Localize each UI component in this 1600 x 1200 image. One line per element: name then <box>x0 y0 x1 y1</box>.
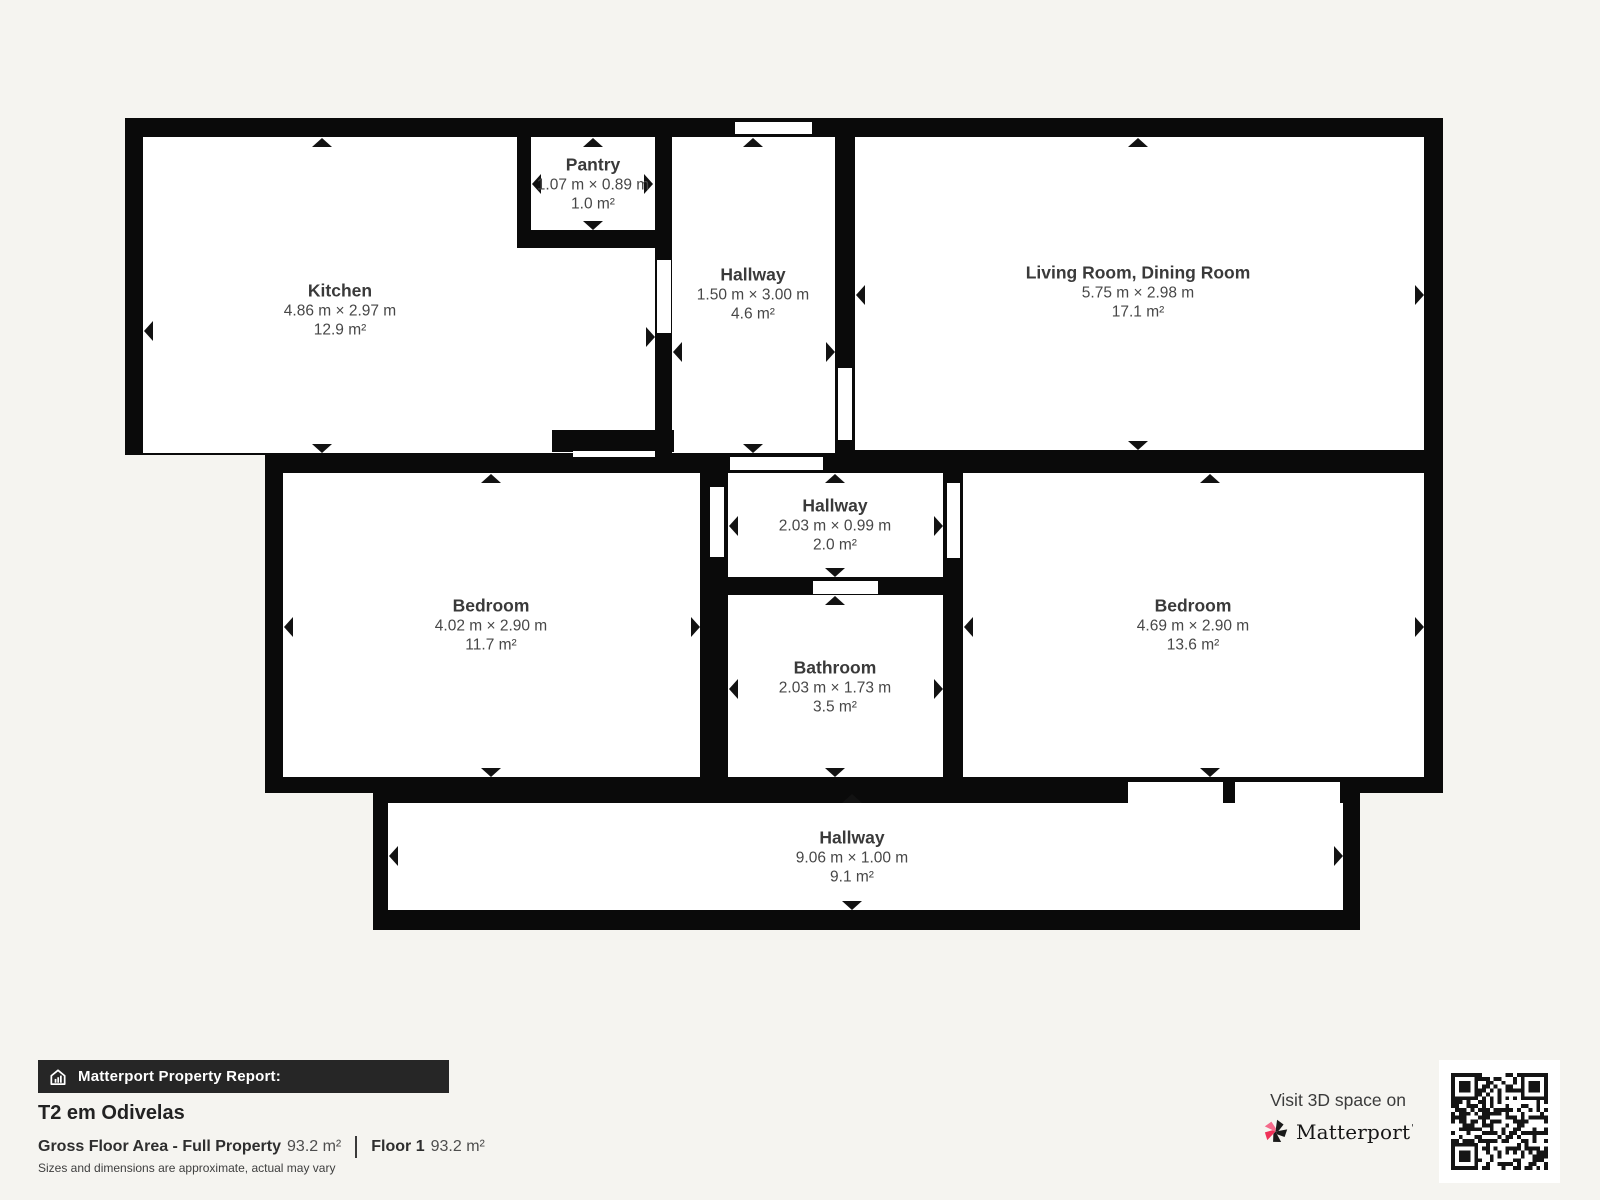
divider <box>355 1136 357 1158</box>
room-label-kitchen: Kitchen 4.86 m × 2.97 m 12.9 m² <box>284 281 396 340</box>
measure-arrow-down <box>312 444 332 453</box>
room-dimensions: 2.03 m × 1.73 m <box>779 679 891 698</box>
measure-arrow-right <box>934 679 943 699</box>
door-opening <box>657 260 671 333</box>
measure-arrow-right <box>691 617 700 637</box>
room-label-bathroom: Bathroom 2.03 m × 1.73 m 3.5 m² <box>779 658 891 717</box>
matterport-logo: Matterport' <box>1243 1118 1433 1145</box>
measure-arrow-down <box>1128 441 1148 450</box>
room-dimensions: 2.03 m × 0.99 m <box>779 517 891 536</box>
room-dimensions: 4.02 m × 2.90 m <box>435 617 547 636</box>
measure-arrow-right <box>826 342 835 362</box>
visit-3d-text: Visit 3D space on <box>1243 1090 1433 1111</box>
room-dimensions: 9.06 m × 1.00 m <box>796 849 908 868</box>
property-report-page: Kitchen 4.86 m × 2.97 m 12.9 m² Pantry 1… <box>0 0 1600 1200</box>
room-name: Hallway <box>796 828 908 849</box>
room-label-hallway-top: Hallway 1.50 m × 3.00 m 4.6 m² <box>697 265 809 324</box>
measure-arrow-left <box>144 321 153 341</box>
measure-arrow-left <box>729 679 738 699</box>
room-area: 13.6 m² <box>1137 636 1249 655</box>
door-opening <box>1235 782 1340 803</box>
wall-segment-kitchen-notch <box>552 430 674 452</box>
gross-floor-area-value: 93.2 m² <box>287 1138 341 1156</box>
room-name: Kitchen <box>284 281 396 302</box>
measure-arrow-left <box>673 342 682 362</box>
room-name: Bathroom <box>779 658 891 679</box>
measure-arrow-left <box>284 617 293 637</box>
room-dimensions: 1.07 m × 0.89 m <box>537 176 649 195</box>
room-area: 9.1 m² <box>796 868 908 887</box>
room-area: 3.5 m² <box>779 698 891 717</box>
measure-arrow-up <box>825 474 845 483</box>
room-area: 1.0 m² <box>537 195 649 214</box>
matterport-wordmark: Matterport' <box>1296 1120 1414 1144</box>
report-bar-label: Matterport Property Report: <box>78 1068 281 1085</box>
door-opening <box>710 487 724 557</box>
room-name: Hallway <box>697 265 809 286</box>
room-label-bedroom-left: Bedroom 4.02 m × 2.90 m 11.7 m² <box>435 596 547 655</box>
room-kitchen <box>517 248 655 453</box>
room-area: 11.7 m² <box>435 636 547 655</box>
room-name: Bedroom <box>435 596 547 617</box>
room-dimensions: 1.50 m × 3.00 m <box>697 286 809 305</box>
measure-arrow-right <box>646 327 655 347</box>
measure-arrow-right <box>1334 846 1343 866</box>
room-area: 12.9 m² <box>284 321 396 340</box>
door-opening <box>1128 782 1223 803</box>
trademark-mark: ' <box>1411 1124 1414 1134</box>
house-chart-icon <box>48 1067 68 1087</box>
measure-arrow-left <box>729 516 738 536</box>
measure-arrow-left <box>389 846 398 866</box>
room-label-hallway-mid: Hallway 2.03 m × 0.99 m 2.0 m² <box>779 496 891 555</box>
door-opening <box>838 368 852 440</box>
property-title: T2 em Odivelas <box>38 1102 185 1125</box>
room-area: 2.0 m² <box>779 536 891 555</box>
door-opening <box>730 457 823 470</box>
room-name: Bedroom <box>1137 596 1249 617</box>
room-label-bedroom-right: Bedroom 4.69 m × 2.90 m 13.6 m² <box>1137 596 1249 655</box>
measure-arrow-down <box>842 901 862 910</box>
door-opening <box>573 451 655 457</box>
room-label-pantry: Pantry 1.07 m × 0.89 m 1.0 m² <box>537 155 649 214</box>
measure-arrow-down <box>743 444 763 453</box>
measure-arrow-right <box>1415 285 1424 305</box>
room-label-living: Living Room, Dining Room 5.75 m × 2.98 m… <box>1026 263 1251 322</box>
measure-arrow-down <box>583 221 603 230</box>
floor-label: Floor 1 <box>371 1138 424 1156</box>
gross-floor-area-label: Gross Floor Area - Full Property <box>38 1138 281 1156</box>
measure-arrow-up <box>1128 138 1148 147</box>
window-opening <box>735 122 812 134</box>
room-dimensions: 5.75 m × 2.98 m <box>1026 284 1251 303</box>
measure-arrow-right <box>934 516 943 536</box>
qr-code <box>1451 1073 1548 1170</box>
measure-arrow-up <box>312 138 332 147</box>
visit-3d-block: Visit 3D space on Matterport' <box>1243 1090 1433 1145</box>
room-area: 17.1 m² <box>1026 303 1251 322</box>
room-label-hallway-bottom: Hallway 9.06 m × 1.00 m 9.1 m² <box>796 828 908 887</box>
measure-arrow-up <box>825 596 845 605</box>
disclaimer-text: Sizes and dimensions are approximate, ac… <box>38 1161 335 1175</box>
floor-area-summary: Gross Floor Area - Full Property 93.2 m²… <box>38 1136 485 1158</box>
measure-arrow-down <box>825 768 845 777</box>
measure-arrow-right <box>1415 617 1424 637</box>
room-name: Hallway <box>779 496 891 517</box>
measure-arrow-down <box>825 568 845 577</box>
room-name: Living Room, Dining Room <box>1026 263 1251 284</box>
measure-arrow-left <box>964 617 973 637</box>
room-dimensions: 4.86 m × 2.97 m <box>284 302 396 321</box>
qr-code-card <box>1439 1060 1560 1183</box>
matterport-pinwheel-icon <box>1262 1118 1289 1145</box>
room-dimensions: 4.69 m × 2.90 m <box>1137 617 1249 636</box>
report-header-bar: Matterport Property Report: <box>38 1060 449 1093</box>
measure-arrow-up <box>743 138 763 147</box>
measure-arrow-up <box>842 794 862 803</box>
room-area: 4.6 m² <box>697 305 809 324</box>
measure-arrow-down <box>481 768 501 777</box>
measure-arrow-left <box>856 285 865 305</box>
measure-arrow-up <box>481 474 501 483</box>
room-name: Pantry <box>537 155 649 176</box>
measure-arrow-up <box>1200 474 1220 483</box>
measure-arrow-up <box>583 138 603 147</box>
door-opening <box>947 483 960 558</box>
floor-value: 93.2 m² <box>431 1138 485 1156</box>
door-opening <box>813 581 878 594</box>
measure-arrow-down <box>1200 768 1220 777</box>
